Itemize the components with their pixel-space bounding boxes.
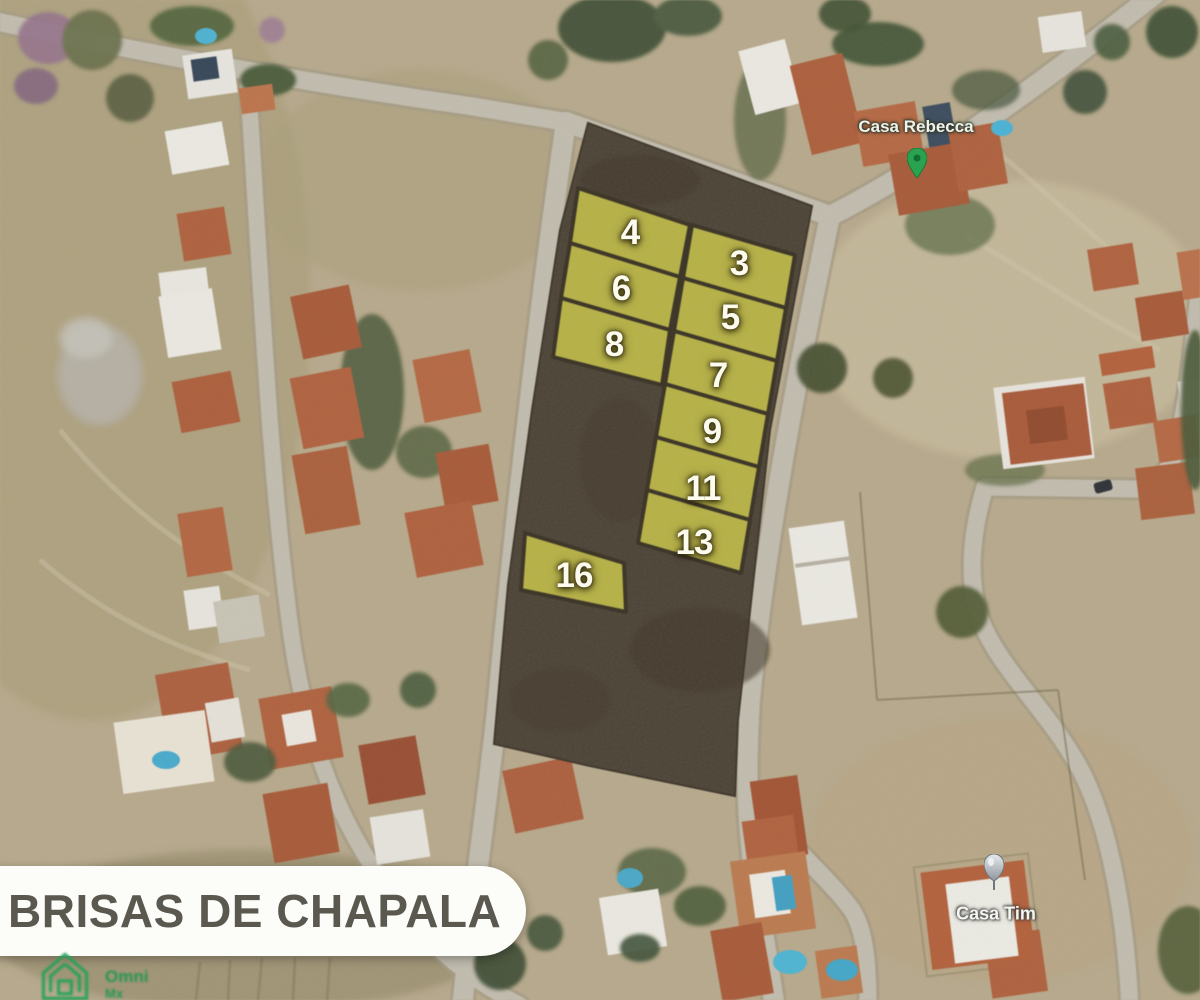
green-house-icon xyxy=(34,952,96,1000)
pin-label-casa-tim: Casa Tim xyxy=(956,904,1036,925)
brand-watermark: Omni Mx xyxy=(34,952,148,1000)
pin-label-casa-rebecca: Casa Rebecca xyxy=(858,117,973,137)
map-pin-icon xyxy=(984,854,1004,892)
brand-subname: Mx xyxy=(105,986,148,1000)
brand-watermark-text: Omni Mx xyxy=(105,952,148,1000)
satellite-map: 4 3 6 5 8 7 9 11 13 16 Casa Rebecca Casa… xyxy=(0,0,1200,1000)
image-grain xyxy=(0,0,1200,1000)
pin-casa-tim[interactable] xyxy=(984,854,1004,897)
satellite-imagery xyxy=(0,0,1200,1000)
brand-name: Omni xyxy=(105,968,148,986)
map-pin-icon xyxy=(907,148,927,180)
title-banner: BRISAS DE CHAPALA xyxy=(0,866,526,956)
development-title: BRISAS DE CHAPALA xyxy=(8,884,501,938)
pin-casa-rebecca[interactable] xyxy=(907,148,927,185)
